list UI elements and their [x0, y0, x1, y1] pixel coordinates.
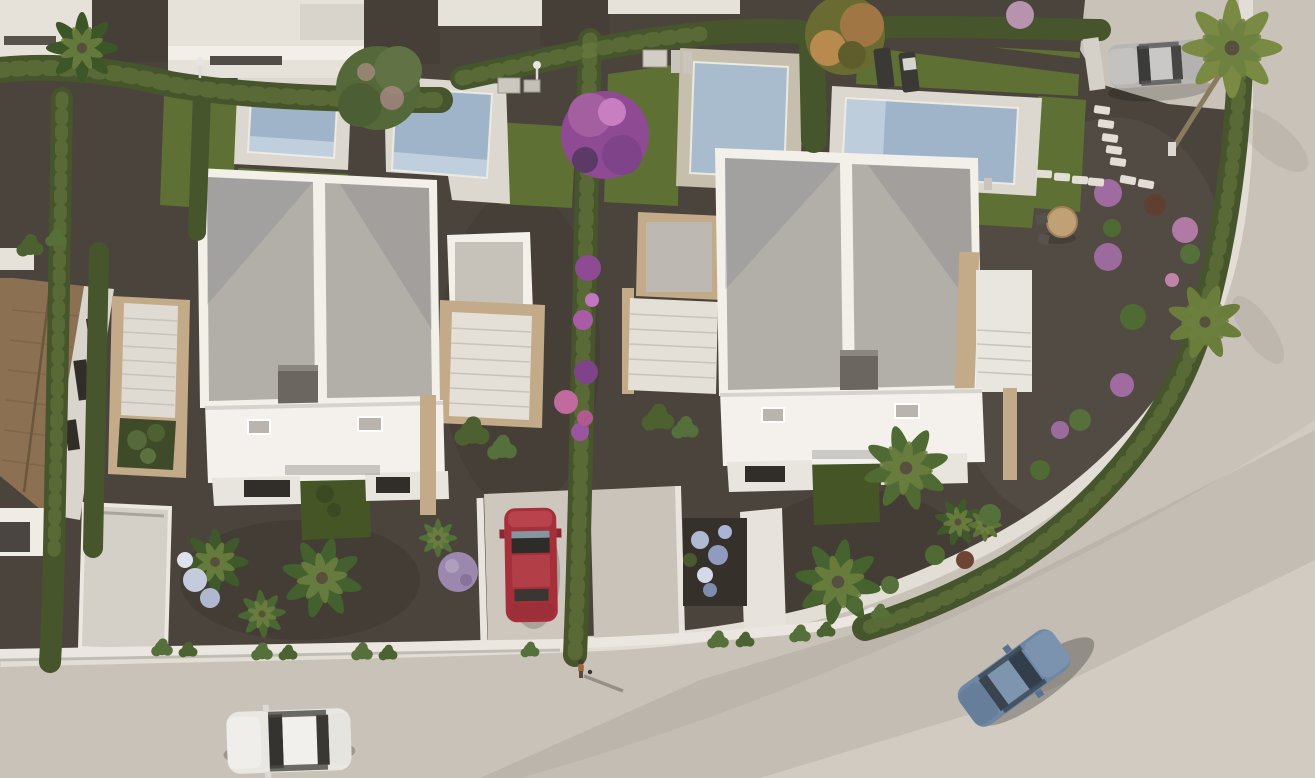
garden-palm [419, 519, 457, 557]
villa2-window [745, 466, 785, 482]
red-car [499, 507, 563, 629]
pink-bougainvillea [554, 390, 578, 414]
villa1-roof [197, 168, 440, 408]
villa1-tan-wall [420, 395, 436, 515]
villa1-window [376, 477, 410, 493]
pool-ladder [984, 178, 992, 190]
tall-palm-top-right [1182, 0, 1283, 98]
banana-palm [46, 12, 118, 84]
villa2-tan-wall [1003, 388, 1017, 480]
villa2-driveway [590, 486, 680, 640]
purple-ball-bush [438, 552, 478, 592]
villa2-front-lawn [812, 455, 880, 525]
villa2-skylight [762, 408, 784, 422]
villa1-window [244, 480, 290, 497]
villa2-skylight [895, 404, 919, 418]
villa1-skylight [248, 420, 270, 434]
villa1-right-staircase [437, 232, 545, 428]
purple-bougainvillea-tree [561, 91, 649, 179]
white-car [222, 702, 357, 778]
villa1-left-staircase [108, 296, 190, 478]
render-canvas [0, 0, 1315, 778]
villa2-roof [715, 148, 982, 396]
villa1-skylight [358, 417, 382, 431]
flower-bed [683, 518, 747, 606]
aerial-render-image [0, 0, 1315, 778]
villa1-roof-hatch [278, 365, 318, 407]
